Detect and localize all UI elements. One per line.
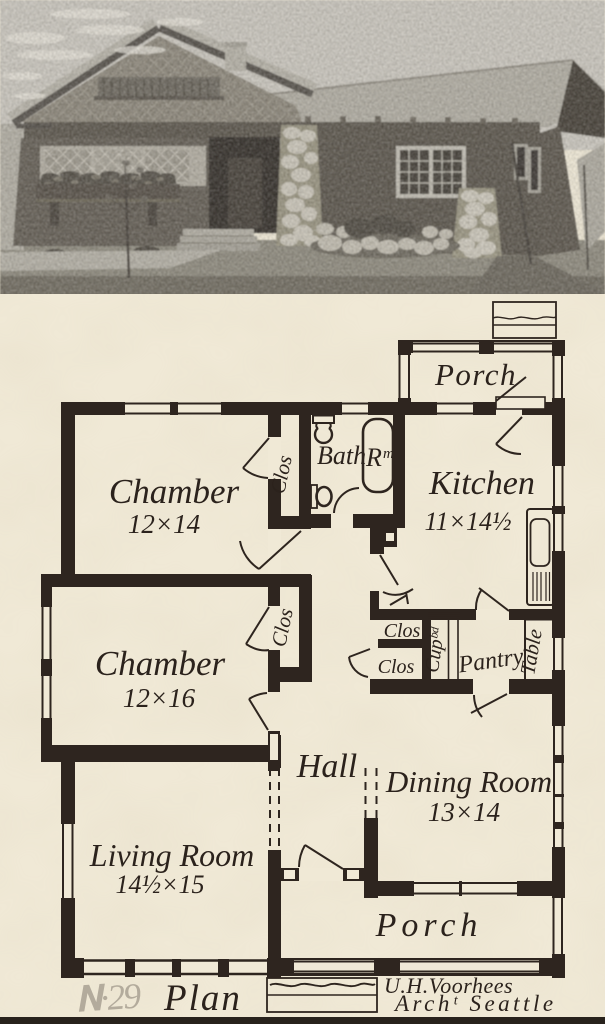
svg-text:Archᵗ Seattle: Archᵗ Seattle bbox=[393, 991, 557, 1016]
svg-text:Bath: Bath bbox=[317, 441, 366, 470]
svg-text:Chamber: Chamber bbox=[109, 472, 240, 511]
svg-text:13×14: 13×14 bbox=[428, 797, 500, 827]
svg-text:Porch: Porch bbox=[434, 357, 517, 392]
svg-text:11×14½: 11×14½ bbox=[424, 507, 511, 536]
svg-text:Living Room: Living Room bbox=[89, 837, 254, 873]
svg-text:12×14: 12×14 bbox=[128, 509, 200, 539]
svg-text:Chamber: Chamber bbox=[95, 644, 226, 683]
svg-text:12×16: 12×16 bbox=[123, 683, 196, 713]
svg-text:R: R bbox=[365, 443, 382, 472]
svg-text:14½×15: 14½×15 bbox=[115, 870, 204, 899]
svg-text:Plan: Plan bbox=[163, 978, 242, 1019]
svg-text:Clos: Clos bbox=[384, 620, 421, 642]
svg-text:Hall: Hall bbox=[296, 748, 357, 785]
svg-text:Porch: Porch bbox=[375, 907, 483, 944]
svg-text:Clos: Clos bbox=[378, 656, 415, 678]
svg-text:𝐍·29: 𝐍·29 bbox=[74, 975, 143, 1020]
svg-text:Dining Room: Dining Room bbox=[385, 764, 552, 799]
svg-text:Kitchen: Kitchen bbox=[428, 465, 535, 502]
svg-text:m: m bbox=[383, 446, 394, 462]
